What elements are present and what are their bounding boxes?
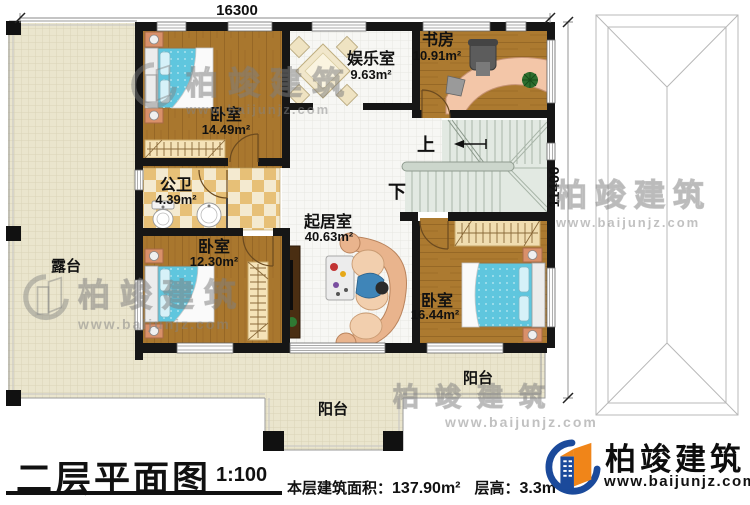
floor-area-label: 本层建筑面积： bbox=[287, 480, 392, 497]
entertainment-area: 9.63m² bbox=[350, 67, 392, 82]
balcony-right-label: 阳台 bbox=[463, 369, 493, 387]
double-bed bbox=[462, 263, 545, 327]
bedroom-c-area: 16.44m² bbox=[411, 307, 460, 322]
wardrobe bbox=[455, 220, 540, 246]
entertainment-furniture bbox=[288, 36, 357, 105]
coffee-table bbox=[326, 256, 354, 300]
entertainment-label: 娱乐室 bbox=[347, 49, 395, 68]
balcony-bottom-label: 阳台 bbox=[318, 400, 348, 418]
company-logo-block: 柏竣建筑 www.baijunjz.com bbox=[543, 432, 750, 505]
company-logo-icon bbox=[543, 436, 601, 502]
double-bed bbox=[145, 266, 214, 322]
drawing-scale: 1:100 bbox=[216, 464, 267, 487]
floor-stats: 本层建筑面积：137.90m²层高：3.3m bbox=[287, 477, 556, 498]
study-label: 书房 bbox=[422, 30, 454, 49]
title-underline bbox=[6, 491, 282, 495]
dimension-width-label: 16300 bbox=[216, 2, 258, 19]
double-bed bbox=[145, 48, 213, 108]
floor-area-value: 137.90m² bbox=[392, 480, 461, 497]
bedroom-c-furniture bbox=[455, 220, 545, 342]
floor-plan-drawing: 16300 11400 卧室 14.49m² 娱乐室 9.63m² 书房 10.… bbox=[0, 0, 750, 505]
living-area: 40.63m² bbox=[305, 229, 354, 244]
bedroom-a-area: 14.49m² bbox=[202, 122, 251, 137]
bedroom-b-area: 12.30m² bbox=[190, 254, 239, 269]
title-block: 二层平面图 1:100 本层建筑面积：137.90m²层高：3.3m 柏竣建筑 … bbox=[0, 448, 750, 505]
study-area: 10.91m² bbox=[413, 48, 462, 63]
waste-bin bbox=[446, 76, 465, 96]
stairs-down-label: 下 bbox=[388, 182, 406, 202]
company-website: www.baijunjz.com bbox=[604, 473, 750, 490]
bathroom-area: 4.39m² bbox=[155, 192, 197, 207]
sink bbox=[197, 203, 221, 227]
dimension-top: 16300 bbox=[15, 2, 555, 23]
dimension-height-label: 11400 bbox=[546, 167, 563, 208]
plant bbox=[522, 72, 538, 88]
floor-height-label: 层高： bbox=[475, 480, 520, 497]
floor-plan-page: 16300 11400 卧室 14.49m² 娱乐室 9.63m² 书房 10.… bbox=[0, 0, 750, 505]
stair-handrail bbox=[402, 162, 514, 171]
wardrobe bbox=[248, 262, 268, 340]
stairs-up-label: 上 bbox=[417, 135, 435, 155]
adjacent-roof-outline bbox=[596, 15, 738, 415]
wardrobe bbox=[145, 140, 225, 158]
terrace-label: 露台 bbox=[51, 257, 81, 275]
